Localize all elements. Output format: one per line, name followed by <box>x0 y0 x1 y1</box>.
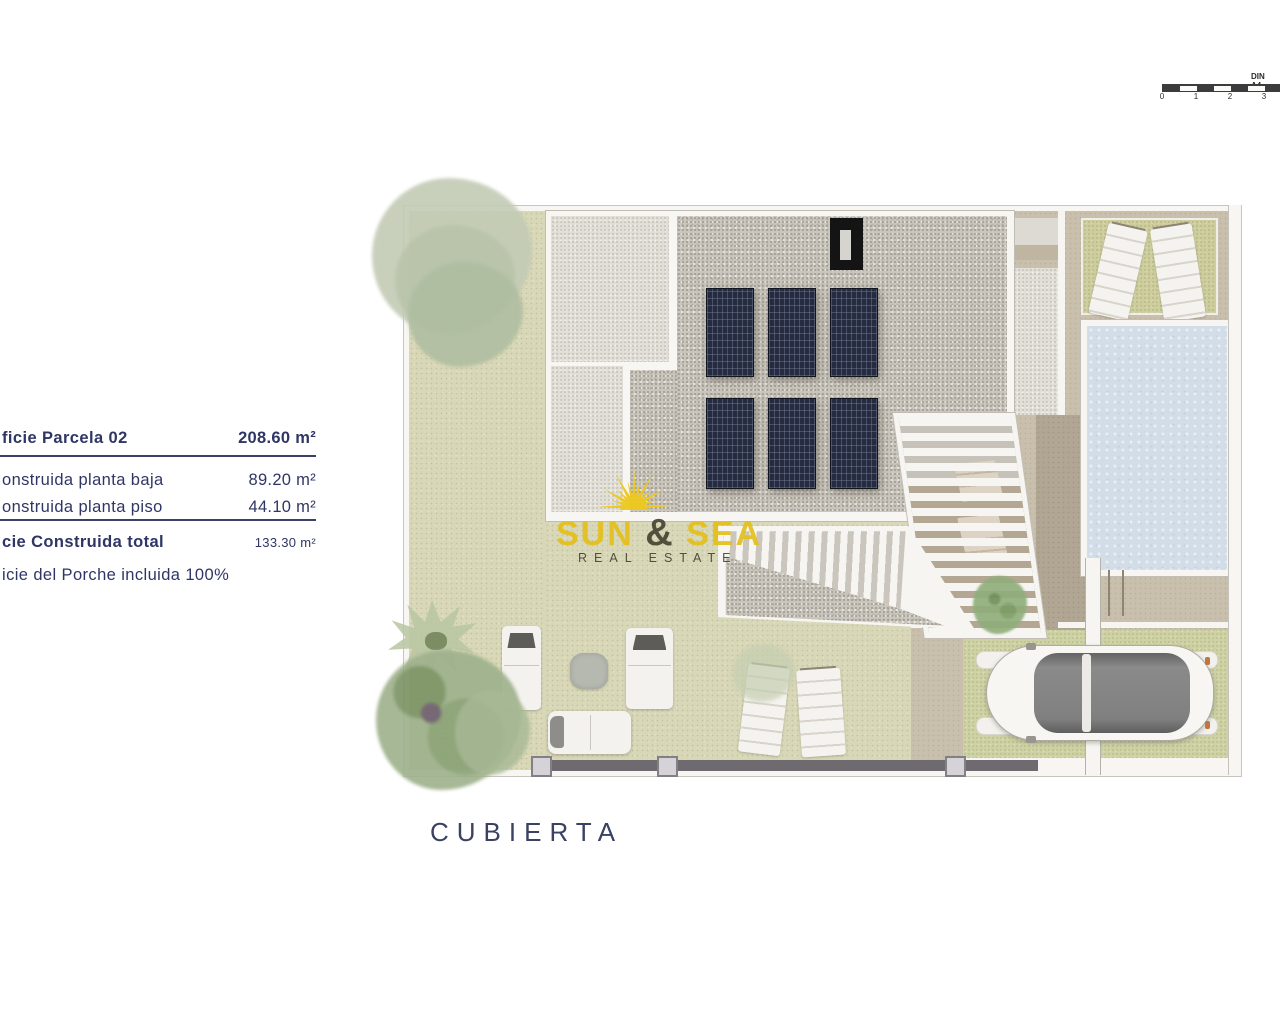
watermark-word-sea: SEA <box>686 515 762 553</box>
coffee-table <box>570 653 608 689</box>
solar-panel <box>706 288 754 377</box>
chaise-chair <box>626 628 673 709</box>
terrace-beige-band <box>1013 245 1062 260</box>
fence-post <box>657 756 678 777</box>
scale-tick: 1 <box>1191 92 1201 101</box>
watermark-ampersand: & <box>645 512 674 554</box>
car-roof-bar <box>1082 654 1091 732</box>
scale-bar-ruler <box>1162 84 1280 92</box>
area-row-label: onstruida planta piso <box>2 498 163 517</box>
car-taillight <box>1205 657 1210 665</box>
car <box>986 645 1214 741</box>
palm-tree-center <box>425 632 447 650</box>
pool-step-line <box>1108 570 1110 616</box>
plan-right-edge <box>1228 205 1241 775</box>
watermark-subtitle: REAL ESTATE <box>578 551 737 565</box>
watermark-sun-icon <box>594 464 674 510</box>
area-row-label: ficie Parcela 02 <box>2 429 128 448</box>
area-row-label: onstruida planta baja <box>2 471 164 490</box>
floor-plan-page: SUN & SEA REAL ESTATE ficie Parcela 02 2… <box>0 0 1280 1024</box>
area-row-value: 133.30 m² <box>214 535 316 550</box>
chimney-flue <box>840 230 851 260</box>
fence-post <box>531 756 552 777</box>
pool-step-line <box>1122 570 1124 616</box>
area-row-label: cie Construida total <box>2 533 164 552</box>
car-mirror <box>1026 643 1036 650</box>
roof-gravel-upper <box>551 216 669 362</box>
side-gravel-strip <box>1013 268 1058 415</box>
watermark-title: SUN & SEA <box>556 512 762 555</box>
terrace-gray-block <box>1013 218 1062 245</box>
car-glass-roof <box>1034 653 1190 733</box>
car-mirror <box>1026 736 1036 743</box>
solar-panel <box>768 288 816 377</box>
area-row-value: 44.10 m² <box>214 498 316 517</box>
table-divider <box>0 455 316 457</box>
sun-lounger <box>796 668 846 758</box>
scale-tick: 3 <box>1259 92 1269 101</box>
solar-panel <box>706 398 754 489</box>
side-path <box>911 628 963 768</box>
solar-panel <box>768 398 816 489</box>
terrace-walk-strip <box>1036 415 1085 630</box>
swimming-pool <box>1081 320 1233 576</box>
terrace-divider <box>1058 211 1065 415</box>
table-divider <box>0 519 316 521</box>
scale-tick: 2 <box>1225 92 1235 101</box>
watermark-word-sun: SUN <box>556 515 634 553</box>
area-row-value: 89.20 m² <box>214 471 316 490</box>
plan-caption: CUBIERTA <box>430 817 623 848</box>
solar-panel <box>830 398 878 489</box>
solar-panel <box>830 288 878 377</box>
scale-tick: 0 <box>1157 92 1167 101</box>
outdoor-sofa <box>548 711 631 754</box>
fence-post <box>945 756 966 777</box>
car-taillight <box>1205 721 1210 729</box>
area-row-value: 208.60 m² <box>214 429 316 448</box>
area-row-label: icie del Porche incluida 100% <box>2 566 229 585</box>
